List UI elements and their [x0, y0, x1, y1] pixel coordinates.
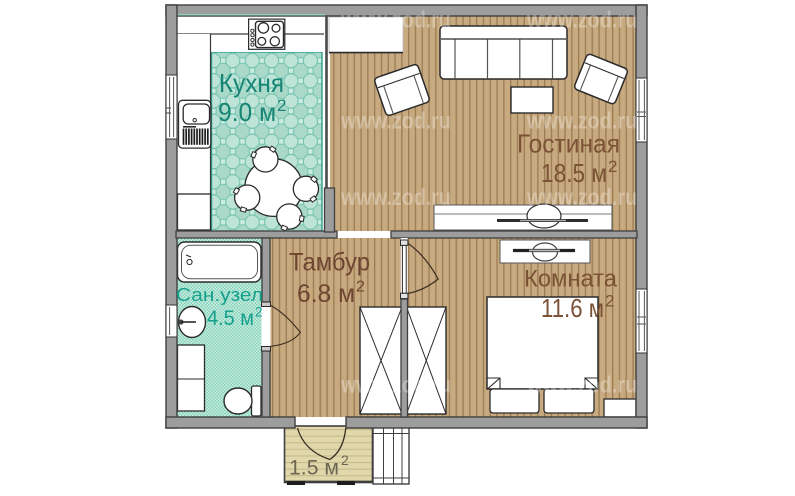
svg-text:www.zod.ru: www.zod.ru [526, 108, 637, 134]
svg-text:2: 2 [255, 305, 263, 320]
svg-text:1.5 м: 1.5 м [289, 457, 339, 480]
svg-text:2: 2 [608, 157, 617, 176]
svg-text:2: 2 [277, 96, 286, 115]
svg-text:2: 2 [605, 292, 614, 311]
svg-text:www.zod.ru: www.zod.ru [526, 7, 637, 33]
svg-text:www.zod.ru: www.zod.ru [340, 372, 451, 398]
svg-text:www.zod.ru: www.zod.ru [526, 372, 637, 398]
svg-text:2: 2 [356, 279, 365, 296]
svg-text:Комната: Комната [524, 266, 618, 293]
svg-text:www.zod.ru: www.zod.ru [340, 108, 451, 134]
svg-text:Сан.узел: Сан.узел [176, 284, 263, 305]
svg-text:4.5 м: 4.5 м [207, 307, 254, 330]
svg-text:www.zod.ru: www.zod.ru [526, 184, 637, 210]
svg-text:www.zod.ru: www.zod.ru [340, 184, 451, 210]
svg-text:9.0 м: 9.0 м [218, 97, 276, 127]
svg-text:Кухня: Кухня [219, 68, 284, 98]
svg-text:11.6 м: 11.6 м [541, 293, 604, 323]
svg-text:www.zod.ru: www.zod.ru [340, 7, 451, 33]
svg-text:Тамбур: Тамбур [289, 249, 370, 277]
svg-text:6.8 м: 6.8 м [297, 280, 355, 308]
svg-text:2: 2 [341, 452, 349, 468]
